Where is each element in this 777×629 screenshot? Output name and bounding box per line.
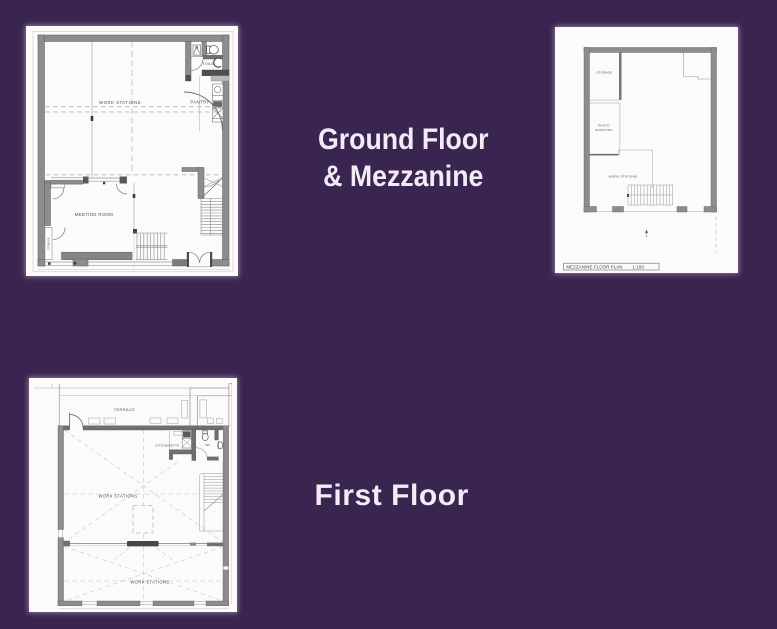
svg-text:1:100: 1:100	[633, 265, 645, 270]
svg-text:TERRACE: TERRACE	[114, 407, 136, 412]
svg-text:SHOOTING: SHOOTING	[595, 128, 613, 132]
svg-text:PANTRY: PANTRY	[190, 100, 209, 105]
svg-text:WORK STATIONS: WORK STATIONS	[99, 100, 141, 105]
svg-text:STORAGE: STORAGE	[47, 237, 51, 250]
svg-text:PHOTO: PHOTO	[598, 124, 610, 128]
svg-text:WORK STATIONS: WORK STATIONS	[609, 175, 638, 179]
svg-text:WORK STATIONS: WORK STATIONS	[131, 580, 170, 585]
svg-text:MEETING ROOM: MEETING ROOM	[75, 212, 113, 217]
svg-text:STORAGE: STORAGE	[596, 71, 612, 75]
svg-text:MEZZANINE FLOOR PLAN: MEZZANINE FLOOR PLAN	[566, 265, 622, 270]
svg-text:WC: WC	[205, 443, 210, 447]
svg-text:KITCHENETTE: KITCHENETTE	[156, 443, 180, 447]
svg-text:WORK STATIONS: WORK STATIONS	[99, 494, 138, 499]
